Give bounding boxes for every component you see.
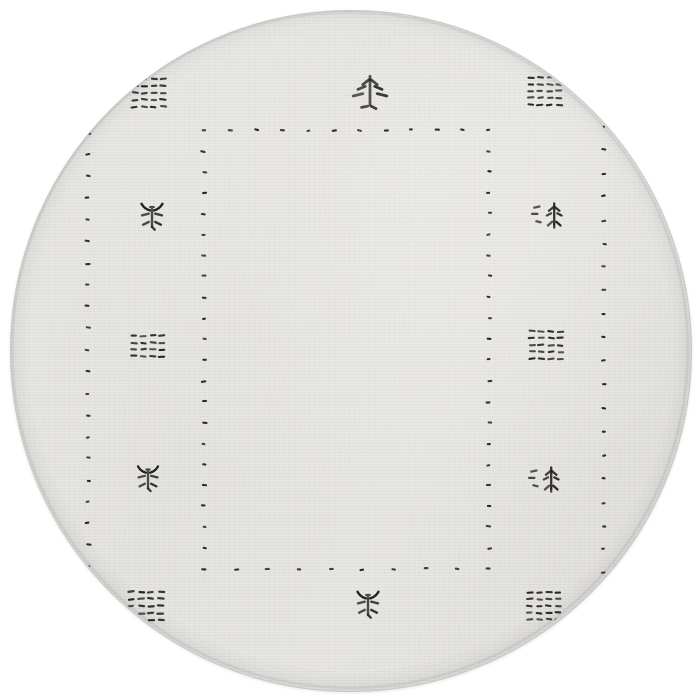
rug-product-photo bbox=[0, 0, 700, 700]
round-rug bbox=[10, 10, 692, 692]
